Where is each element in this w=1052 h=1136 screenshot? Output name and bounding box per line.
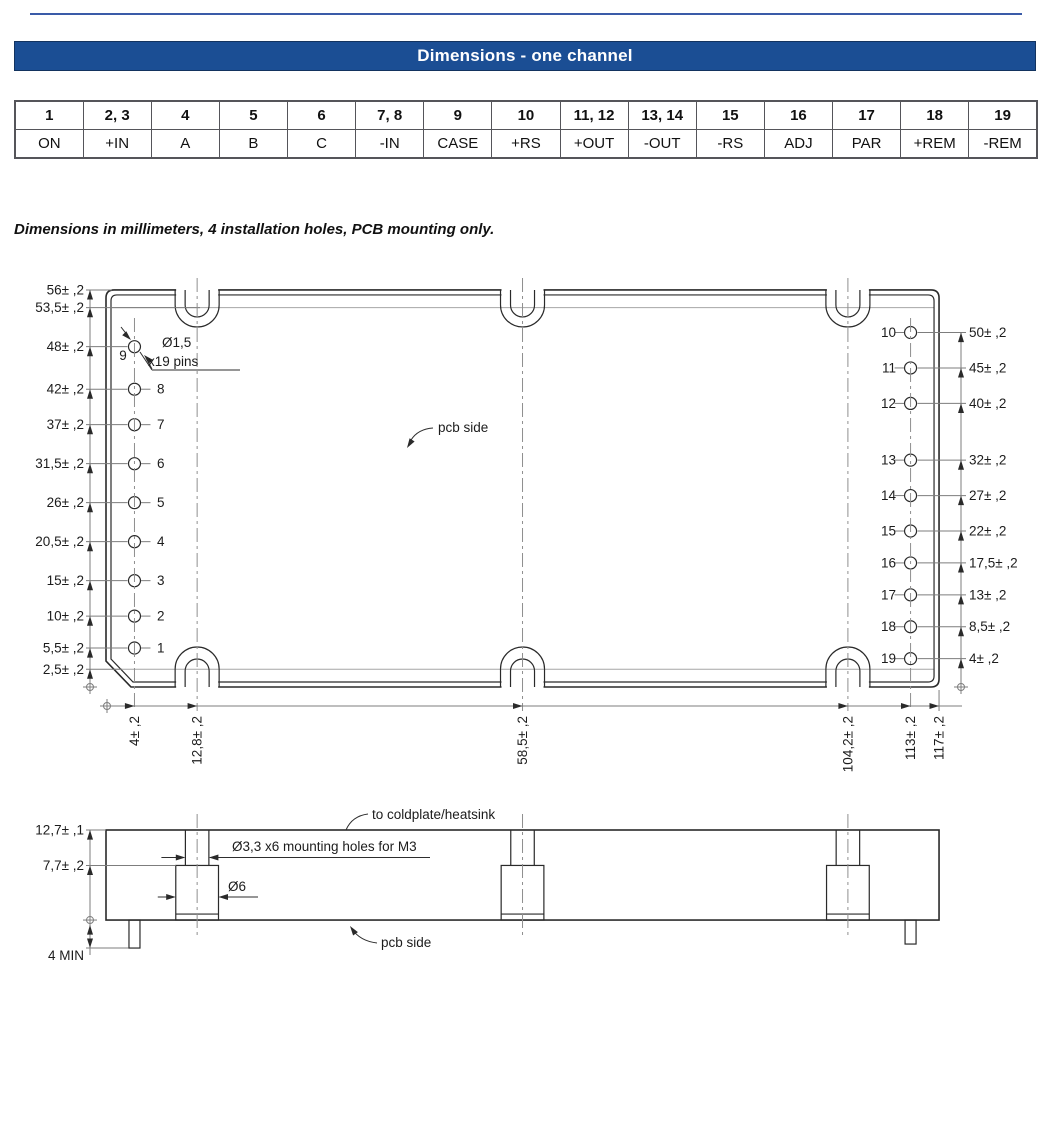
arrowhead <box>87 616 93 626</box>
dim-label-left: 42± ,2 <box>47 382 84 397</box>
bottom-dimensions: 4± ,212,8± ,258,5± ,2104,2± ,2113± ,2117… <box>100 690 962 772</box>
arrowhead <box>958 531 964 541</box>
dim-label-left: 15± ,2 <box>47 573 84 588</box>
arrowhead <box>838 703 848 709</box>
pin-number: 10 <box>881 325 896 340</box>
pin-number: 7 <box>157 417 165 432</box>
arrowhead <box>407 438 415 448</box>
dim-label-left: 10± ,2 <box>47 609 84 624</box>
arrowhead <box>87 939 93 949</box>
side-view-callouts: to coldplate/heatsinkØ3,3 x6 mounting ho… <box>158 807 496 950</box>
arrowhead <box>176 855 186 861</box>
pin-number: 6 <box>157 456 165 471</box>
pin-count-label: x19 pins <box>148 354 199 369</box>
left-pins: 987654321 <box>119 341 165 656</box>
arrowhead <box>87 865 93 875</box>
arrowhead <box>87 503 93 513</box>
arrowhead <box>87 290 93 300</box>
arrowhead <box>87 542 93 552</box>
arrowhead <box>122 331 131 340</box>
mount-holes-label: Ø3,3 x6 mounting holes for M3 <box>232 839 417 854</box>
arrowhead <box>958 627 964 637</box>
arrowhead <box>958 659 964 669</box>
arrowhead <box>87 669 93 679</box>
right-pins: 10111213141516171819 <box>881 325 917 666</box>
dim-label-bottom: 117± ,2 <box>932 716 947 760</box>
arrowhead <box>125 703 135 709</box>
arrowhead <box>513 703 523 709</box>
dim-label-bottom: 4± ,2 <box>127 716 142 746</box>
arrowhead <box>87 308 93 318</box>
pin-number: 8 <box>157 382 165 397</box>
dim-label-left: 26± ,2 <box>47 495 84 510</box>
arrowhead <box>958 496 964 506</box>
dim-label-right: 17,5± ,2 <box>969 555 1018 570</box>
arrowhead <box>87 464 93 474</box>
dim-label-side: 12,7± ,1 <box>35 823 84 838</box>
pin-number: 13 <box>881 453 896 468</box>
pcb-side-label: pcb side <box>381 935 431 950</box>
pin-number: 17 <box>881 587 896 602</box>
pcb-side-callout-top: pcb side <box>407 420 488 448</box>
dim-label-left: 48± ,2 <box>47 339 84 354</box>
dim-label-bottom: 12,8± ,2 <box>190 716 205 765</box>
arrowhead <box>958 563 964 573</box>
technical-drawing: 56± ,253,5± ,22,5± ,248± ,242± ,237± ,23… <box>0 0 1052 1136</box>
dim-label-right: 22± ,2 <box>969 524 1006 539</box>
dim-label-left: 53,5± ,2 <box>35 300 84 315</box>
arrowhead <box>958 403 964 413</box>
dim-label-right: 45± ,2 <box>969 360 1006 375</box>
dim-label-left: 37± ,2 <box>47 417 84 432</box>
arrowhead <box>209 855 219 861</box>
dim-label-right: 27± ,2 <box>969 488 1006 503</box>
pin-number: 4 <box>157 534 165 549</box>
pin-number: 14 <box>881 488 897 503</box>
dim-label-side: 7,7± ,2 <box>43 858 84 873</box>
dim-label-left: 31,5± ,2 <box>35 456 84 471</box>
arrowhead <box>87 581 93 591</box>
arrowhead <box>218 894 228 900</box>
pin-number: 16 <box>881 555 896 570</box>
boss-diameter-label: Ø6 <box>228 879 246 894</box>
coldplate-label: to coldplate/heatsink <box>372 807 495 822</box>
arrowhead <box>958 333 964 343</box>
pin-number: 15 <box>881 524 896 539</box>
arrowhead <box>87 425 93 435</box>
arrowhead <box>87 648 93 658</box>
arrowhead <box>166 894 176 900</box>
arrowhead <box>901 703 911 709</box>
arrowhead <box>87 389 93 399</box>
pin-number: 5 <box>157 495 165 510</box>
arrowhead <box>930 703 940 709</box>
top-view-centerlines <box>134 278 910 711</box>
arrowhead <box>87 830 93 840</box>
arrowhead <box>188 703 198 709</box>
pin-number: 1 <box>157 641 165 656</box>
dim-label-bottom: 104,2± ,2 <box>840 716 855 772</box>
dim-label-right: 32± ,2 <box>969 453 1006 468</box>
dim-label-right: 50± ,2 <box>969 325 1006 340</box>
dim-label-left: 5,5± ,2 <box>43 641 84 656</box>
pin-number: 11 <box>882 360 896 375</box>
dim-label-left: 20,5± ,2 <box>35 534 84 549</box>
dim-label-right: 8,5± ,2 <box>969 619 1010 634</box>
pin-min-label: 4 MIN <box>48 948 84 963</box>
arrowhead <box>87 347 93 357</box>
pin-diameter-label: Ø1,5 <box>162 335 191 350</box>
pcb-side-label: pcb side <box>438 420 488 435</box>
dim-label-bottom: 113± ,2 <box>903 716 918 760</box>
arrowhead <box>958 460 964 470</box>
dim-label-right: 40± ,2 <box>969 396 1006 411</box>
dim-label-left: 56± ,2 <box>47 282 84 297</box>
dim-label-right: 13± ,2 <box>969 587 1006 602</box>
pin-number: 2 <box>157 609 165 624</box>
arrowhead <box>958 595 964 605</box>
pin-number: 18 <box>881 619 896 634</box>
dim-label-bottom: 58,5± ,2 <box>515 716 530 765</box>
pin-number: 12 <box>881 396 896 411</box>
right-dimensions: 50± ,245± ,240± ,232± ,227± ,222± ,217,5… <box>918 325 1018 694</box>
arrowhead <box>87 925 93 935</box>
arrowhead <box>958 368 964 378</box>
pin-number: 9 <box>119 348 127 363</box>
dim-label-right: 4± ,2 <box>969 651 999 666</box>
pin-number: 3 <box>157 573 165 588</box>
dim-label-left: 2,5± ,2 <box>43 662 84 677</box>
pin-number: 19 <box>881 651 896 666</box>
